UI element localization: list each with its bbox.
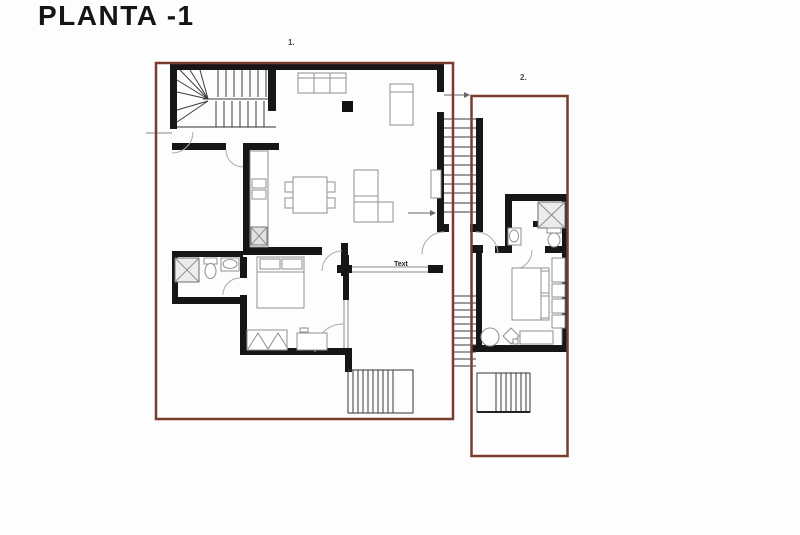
sofa-top [298,73,346,93]
wardrobe-zone2 [552,258,565,328]
wardrobe-zone1 [247,330,288,350]
chairs-zone2 [481,328,553,346]
column-fireplace [342,101,353,112]
text-annotation: Text [394,261,408,268]
exterior-stairs-zone2 [477,373,530,412]
desk-zone1 [297,328,327,350]
wall-shelf [431,170,441,198]
l-sofa [354,170,393,222]
bed-zone2 [512,268,549,320]
bed-zone1 [257,257,304,308]
windows-and-thin-lines [146,133,562,348]
staircase-upper-left [177,70,276,127]
exterior-stairs-zone1 [348,370,413,413]
dining-table [285,177,335,213]
floorplan-page: PLANTA -1 1. 2. [0,0,800,535]
kitchen-counter [250,151,268,247]
cabinet [390,84,413,125]
bathroom1-fixtures [175,258,239,282]
